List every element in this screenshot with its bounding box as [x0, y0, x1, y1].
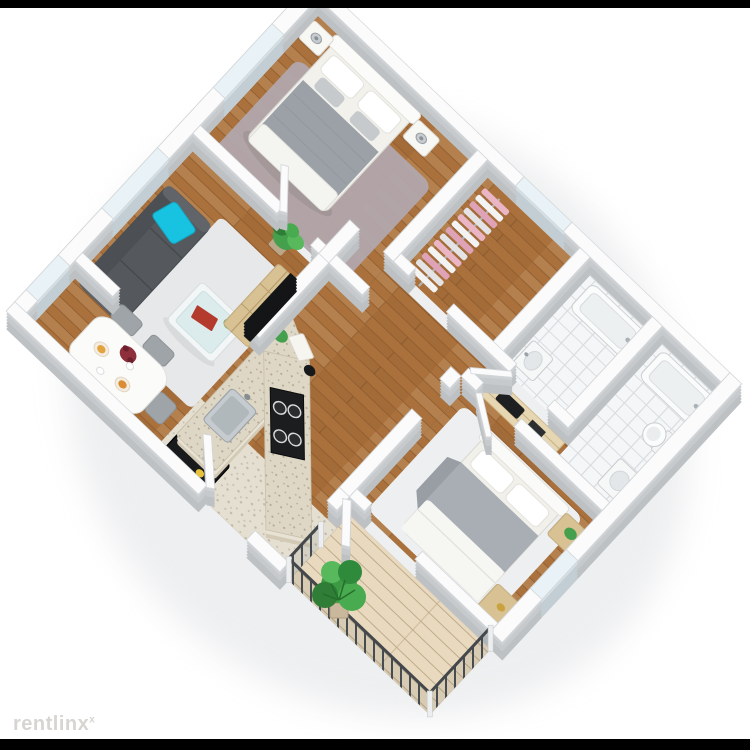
floor-plan-3d-render — [0, 0, 750, 750]
watermark-brand: rentlinx — [13, 713, 89, 735]
letterbox-bar-bottom — [0, 739, 750, 750]
floor-plan-stage — [0, 0, 750, 750]
watermark-rentlinx: rentlinxx — [13, 713, 95, 736]
letterbox-bar-top — [0, 0, 750, 8]
watermark-mark: x — [89, 714, 95, 725]
